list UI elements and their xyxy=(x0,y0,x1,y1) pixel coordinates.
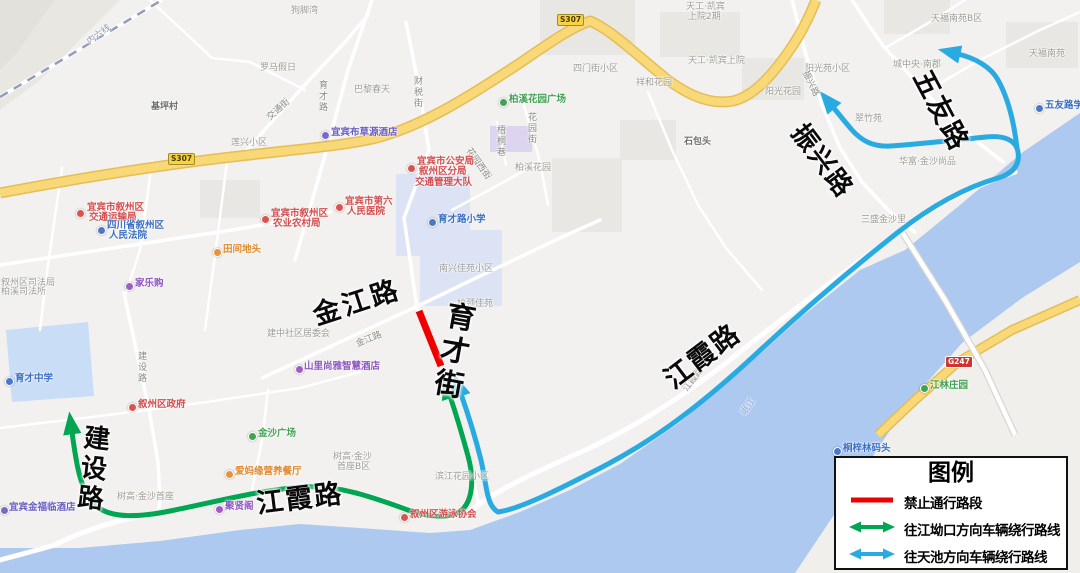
campus-pond xyxy=(6,322,94,402)
police-poi-icon[interactable] xyxy=(407,164,416,173)
area-label-shibaotou: 石包头 xyxy=(684,138,711,147)
road-label-yucai-road: 育才路 xyxy=(317,80,326,113)
poi-label-aima-restaurant: 爱妈缘营养餐厅 xyxy=(235,467,302,477)
school-poi-icon-wuyou[interactable] xyxy=(1035,104,1044,113)
poi-label-jialegou: 家乐购 xyxy=(135,279,164,289)
district-government-poi-icon[interactable] xyxy=(128,403,137,412)
area-label-tianfu: 天福南苑 xyxy=(1029,50,1065,59)
road-label-jianshe-road-small: 建设路 xyxy=(136,351,145,384)
hospital-poi-icon[interactable] xyxy=(335,203,344,212)
road-badge-s307-east: S307 xyxy=(557,14,584,26)
area-label-jianzhong: 建中社区居委会 xyxy=(267,330,330,339)
poi-label-yucai-middle-school: 育才中学 xyxy=(15,374,53,384)
area-label-luoma: 罗马假日 xyxy=(260,64,296,73)
area-label-yangguang-huayuan: 阳光花园 xyxy=(765,88,801,97)
area-label-binjiang: 滨江花园小区 xyxy=(435,473,489,482)
poi-label-yucai-primary-school: 育才路小学 xyxy=(438,215,486,225)
swimming-assoc-poi-icon[interactable] xyxy=(400,513,409,522)
area-label-jiping: 基坪村 xyxy=(151,103,178,112)
road-label-huayuan-street: 花园街 xyxy=(526,112,535,145)
poi-label-hospital-line2: 人民医院 xyxy=(347,207,385,217)
area-label-xianghe: 祥和花园 xyxy=(636,79,672,88)
legend-row-closed: 禁止通行路段 xyxy=(848,492,1066,512)
poi-label-police-line3: 交通管理大队 xyxy=(415,178,472,188)
area-label-sansheng: 三盛金沙里 xyxy=(861,216,906,225)
poi-icon-juxiange[interactable] xyxy=(215,505,224,514)
poi-label-district-government: 叙州区政府 xyxy=(138,400,186,410)
area-label-baixi-huayuan: 柏溪花园 xyxy=(515,164,551,173)
legend-title: 图例 xyxy=(836,460,1066,485)
shopping-poi-icon-jialegou[interactable] xyxy=(125,282,134,291)
detour-map[interactable]: 狗脚湾 罗马假日 基坪村 莲兴小区 巴黎春天 四门街小区 祥和花园 天工·凯宾上… xyxy=(0,0,1080,573)
wharf-anchor-poi-icon[interactable] xyxy=(833,447,842,456)
road-badge-s307-west: S307 xyxy=(168,153,195,165)
primary-school-poi-icon[interactable] xyxy=(428,218,437,227)
area-label-bali: 巴黎春天 xyxy=(354,86,390,95)
legend-row-green-route: 往江坳口方向车辆绕行路线 xyxy=(848,519,1066,539)
poi-label-jianglin-estate: 江林庄园 xyxy=(930,381,968,391)
poi-label-wuyou-school: 五友路学校 xyxy=(1045,101,1080,111)
blue-double-arrow-icon xyxy=(848,547,896,566)
poi-label-juxiange: 聚贤阁 xyxy=(225,502,254,512)
closed-segment-swatch xyxy=(848,493,896,511)
area-label-huafu: 华富·金沙尚品 xyxy=(899,158,956,167)
poi-label-bucao-hotel: 宜宾布草源酒店 xyxy=(331,128,398,138)
restaurant-poi-icon-aima[interactable] xyxy=(225,470,234,479)
poi-label-swimming-assoc: 叙州区游泳协会 xyxy=(410,510,477,520)
legend: 图例 禁止通行路段 往江坳口方向车辆绕行路线 往天池方向车辆绕行路线 xyxy=(834,456,1068,570)
poi-label-police-line2: 叙州区分局 xyxy=(419,167,467,177)
road-label-caishui-street: 财税街 xyxy=(412,76,421,109)
hotel-poi-icon-shanli[interactable] xyxy=(295,365,304,374)
restaurant-poi-icon-tianjian[interactable] xyxy=(213,248,222,257)
area-label-yangguang-yuan: 阳光苑小区 xyxy=(805,65,850,74)
legend-label-green-route: 往江坳口方向车辆绕行路线 xyxy=(904,519,1060,539)
agriculture-bureau-poi-icon[interactable] xyxy=(261,215,270,224)
area-label-goujiaowan: 狗脚湾 xyxy=(291,7,318,16)
park-poi-icon-jianglin[interactable] xyxy=(920,384,929,393)
area-label-cuizhu: 翠竹苑 xyxy=(855,115,882,124)
plaza-poi-icon-baixi[interactable] xyxy=(499,98,508,107)
middle-school-poi-icon[interactable] xyxy=(5,377,14,386)
road-label-wutong-lane: 梧桐巷 xyxy=(495,125,504,158)
legend-row-blue-route: 往天池方向车辆绕行路线 xyxy=(848,546,1066,566)
green-double-arrow-icon xyxy=(848,520,896,539)
legend-label-blue-route: 往天池方向车辆绕行路线 xyxy=(904,546,1047,566)
area-label-simenjie: 四门街小区 xyxy=(573,65,618,74)
road-badge-g247: G247 xyxy=(945,356,973,368)
poi-label-jinfulin-hotel: 宜宾金福临酒店 xyxy=(9,503,76,513)
hotel-poi-icon-jinfulin[interactable] xyxy=(0,506,9,515)
area-label-sifa-line2: 柏溪司法所 xyxy=(1,288,46,297)
poi-label-tongzilin-wharf: 桐梓林码头 xyxy=(843,444,891,454)
hotel-poi-icon-bucao[interactable] xyxy=(321,131,330,140)
poi-label-shanli-hotel: 山里尚雅智慧酒店 xyxy=(304,362,380,372)
area-label-lianxing: 莲兴小区 xyxy=(231,139,267,148)
plaza-poi-icon-jinsha[interactable] xyxy=(248,432,257,441)
poi-label-baixi-plaza: 柏溪花园广场 xyxy=(509,95,566,105)
poi-label-jinsha-plaza: 金沙广场 xyxy=(258,429,296,439)
area-label-tiangong2-line2: 上院2期 xyxy=(688,13,721,22)
area-label-tianfu-b: 天福南苑B区 xyxy=(931,15,982,24)
legend-label-closed: 禁止通行路段 xyxy=(904,492,982,512)
area-label-tiangong2-line1: 天工·凯宾 xyxy=(686,3,725,12)
area-label-nanxing: 南兴佳苑小区 xyxy=(439,265,493,274)
poi-label-agriculture-line2: 农业农村局 xyxy=(273,219,321,229)
area-label-shugao1: 树高·金沙首座 xyxy=(117,493,174,502)
poi-label-court-line2: 人民法院 xyxy=(109,231,147,241)
area-label-shugao2-line2: 首座B区 xyxy=(337,463,370,472)
poi-label-tianjian: 田间地头 xyxy=(223,245,261,255)
area-label-shugao2-line1: 树高·金沙 xyxy=(333,453,372,462)
court-poi-icon[interactable] xyxy=(97,226,106,235)
government-poi-icon[interactable] xyxy=(76,209,85,218)
area-label-tiangong1: 天工·凯宾上院 xyxy=(688,57,745,66)
